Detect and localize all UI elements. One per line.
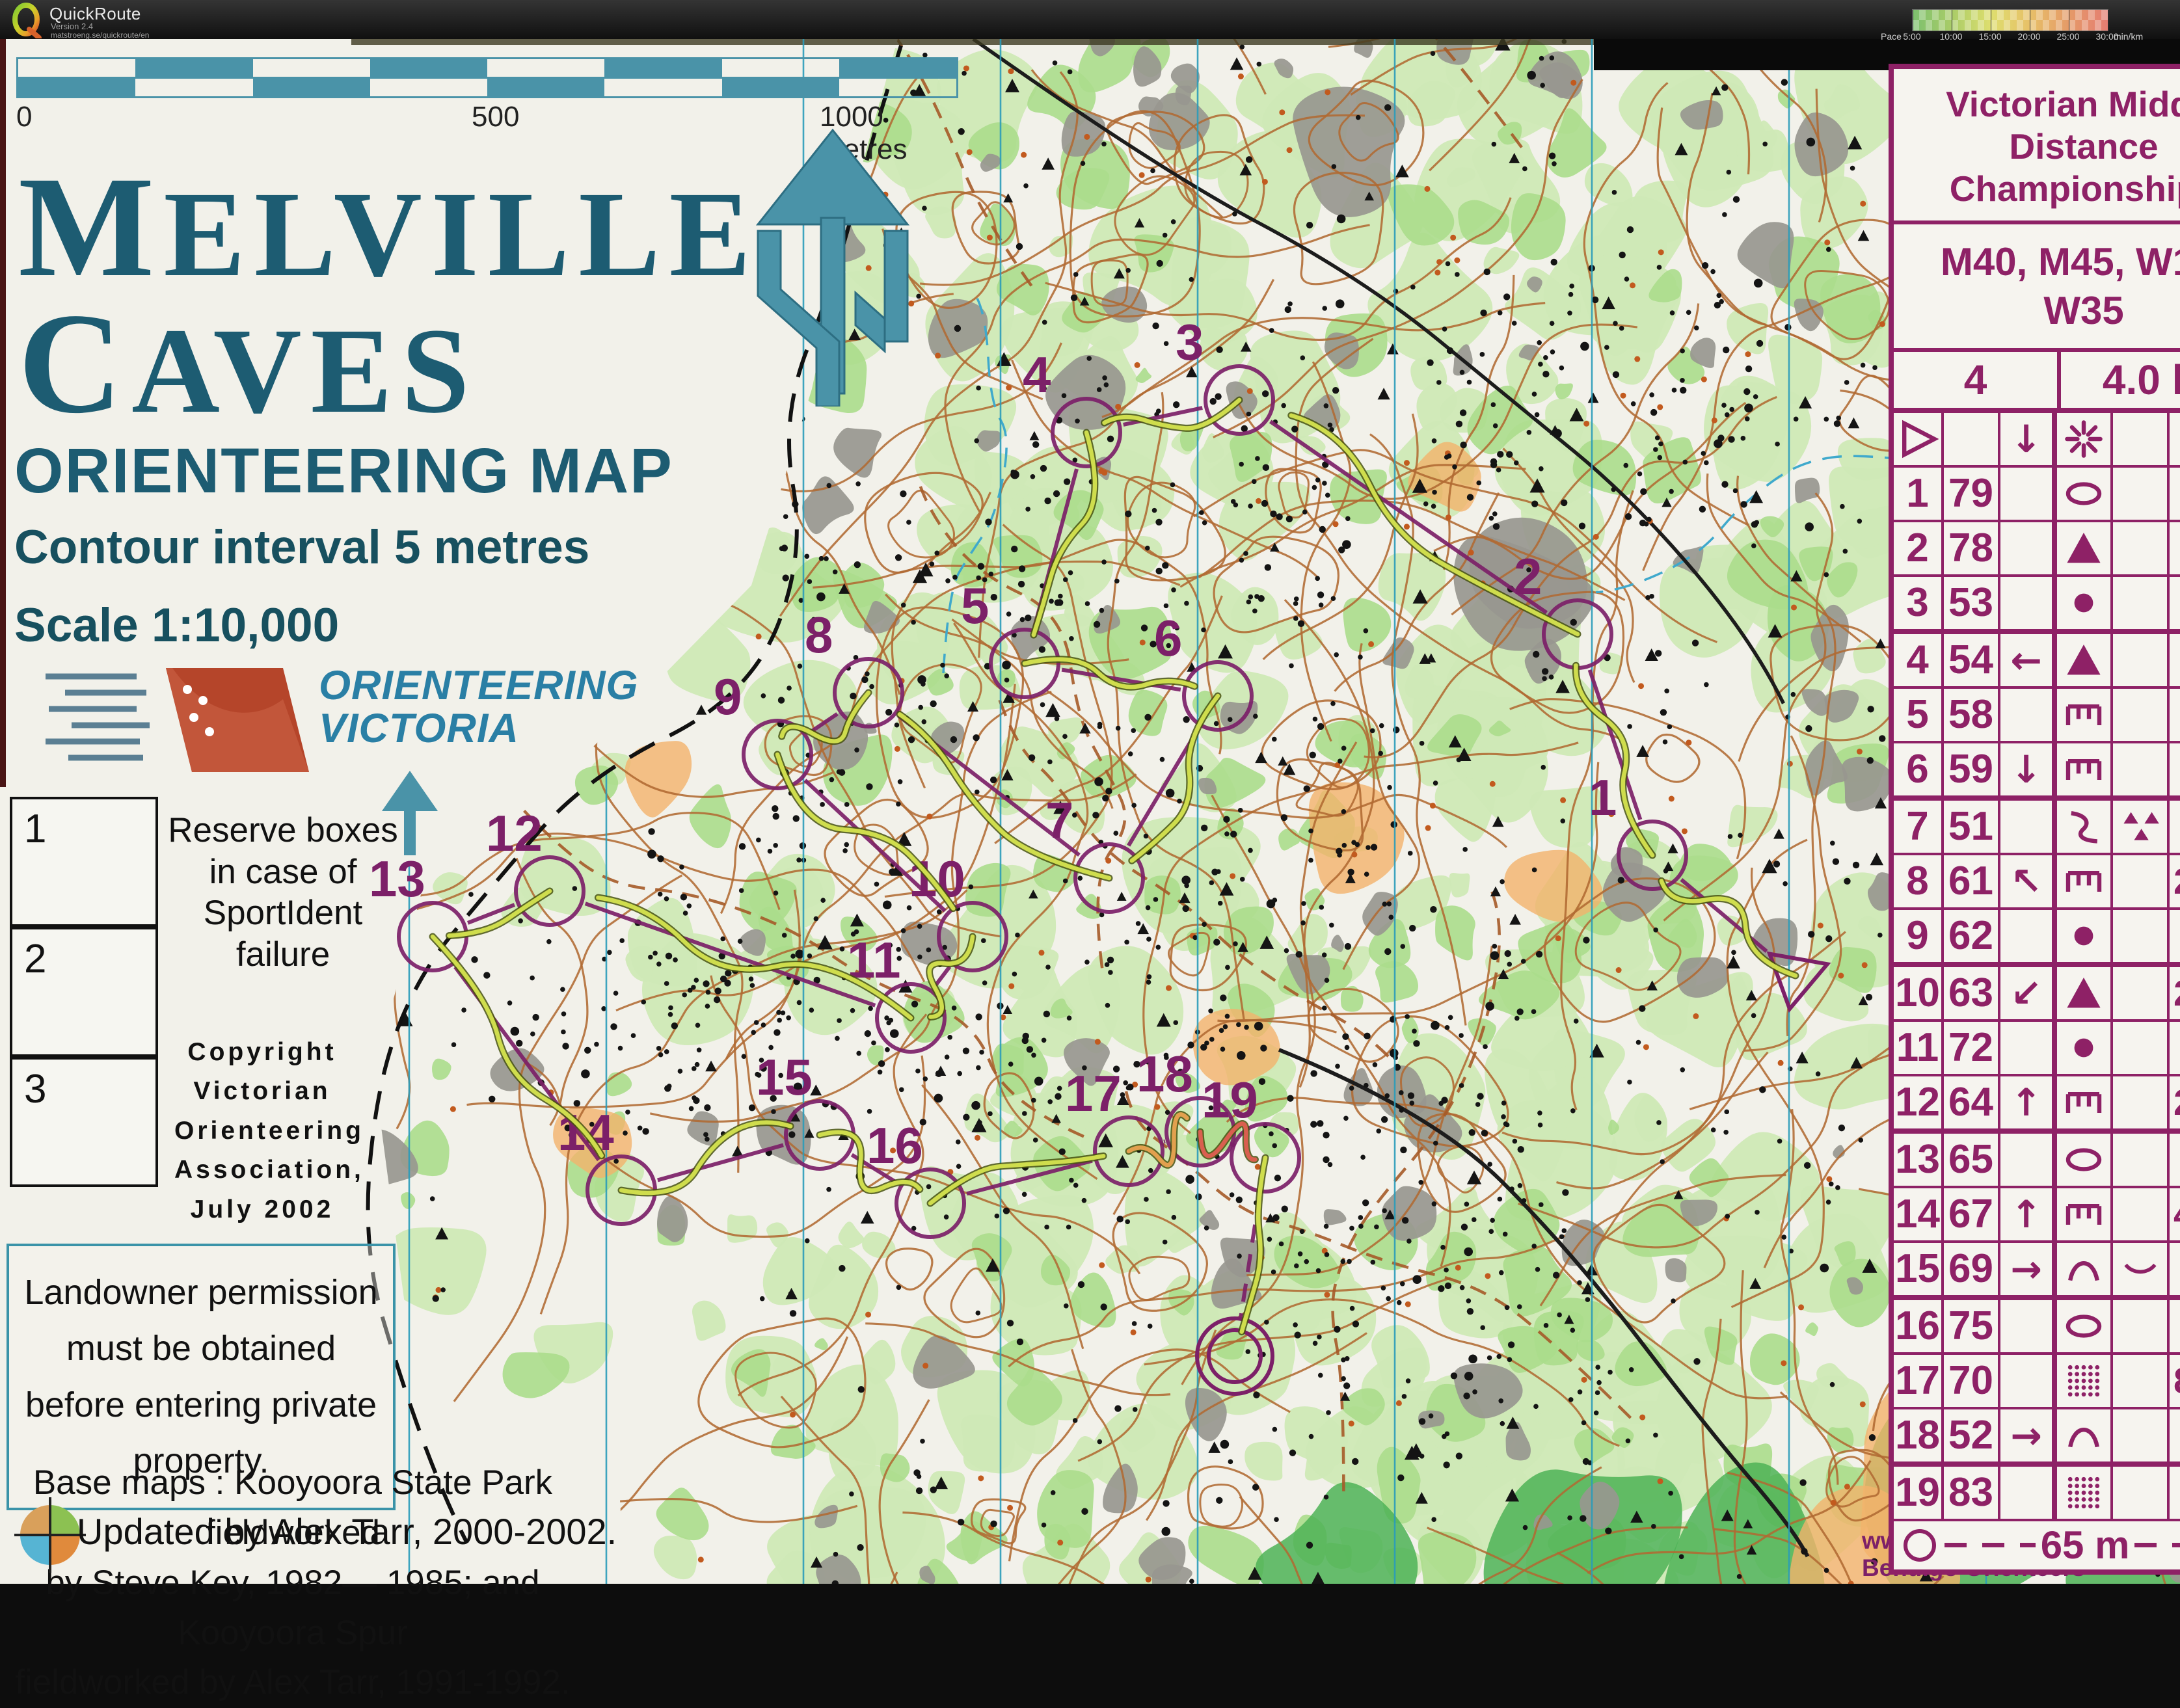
control-number: 5: [1894, 689, 1944, 741]
sheet-row-control-11: 1172: [1894, 1022, 2180, 1076]
reserve-note: Reserve boxes in case of SportIdent fail…: [166, 810, 400, 975]
course-control-number: 12: [486, 805, 543, 862]
detail-symbol: [2113, 743, 2170, 795]
detail-symbol: [2113, 801, 2170, 853]
dimension-value: [2170, 468, 2180, 520]
pace-tick-label: 10:00: [1939, 31, 1962, 42]
detail-symbol: [2113, 910, 2170, 962]
map-scale-note: Scale 1:10,000: [14, 598, 339, 652]
control-number: 2: [1894, 522, 1944, 574]
dimension-value: 2: [2170, 1076, 2180, 1128]
pace-tick: [2069, 10, 2069, 31]
scale-bar-segment: [839, 79, 956, 96]
control-code: 59: [1944, 743, 2000, 795]
start-symbol: [1894, 413, 1944, 465]
sheet-row-control-16: 1675: [1894, 1300, 2180, 1355]
control-number: 9: [1894, 910, 1944, 962]
scale-bar-segment: [839, 59, 956, 77]
feature-symbol: [2057, 1188, 2113, 1240]
orienteering-victoria-logo: ORIENTEERING VICTORIA: [39, 660, 677, 781]
pace-legend: Pace 5:0010:0015:0020:0025:0030:00 min/k…: [1868, 0, 2173, 39]
which-feature-arrow: ↑: [2000, 1076, 2057, 1128]
feature-symbol: [2057, 1467, 2113, 1519]
pace-gradient-bar: [1912, 9, 2108, 31]
dimension-value: 2: [2170, 967, 2180, 1019]
small-north-arrow-icon: [381, 771, 439, 855]
control-code: 83: [1944, 1467, 2000, 1519]
control-code: 69: [1944, 1243, 2000, 1295]
dimension-value: [2170, 743, 2180, 795]
which-feature-arrow: ↓: [2000, 413, 2057, 465]
dimension-value: [2170, 413, 2180, 465]
sheet-row-control-12: 1264↑2: [1894, 1076, 2180, 1134]
association-roundel-icon: [14, 1496, 86, 1574]
quickroute-logo-icon: [9, 2, 44, 38]
control-number: 16: [1894, 1300, 1944, 1352]
detail-symbol: [2113, 1243, 2170, 1295]
control-code: [1944, 413, 2000, 465]
scale-bar-segment: [487, 79, 604, 96]
title-bar: QuickRoute Version 2.4 matstroeng.se/qui…: [0, 0, 2180, 39]
pace-tick: [2108, 10, 2108, 31]
dimension-value: [2170, 689, 2180, 741]
feature-symbol: [2057, 413, 2113, 465]
course-control-number: 3: [1176, 314, 1204, 371]
sheet-row-control-17: 17708: [1894, 1355, 2180, 1409]
which-feature-arrow: →: [2000, 1243, 2057, 1295]
dimension-value: [2170, 910, 2180, 962]
map-title-line1: MELVILLE: [18, 155, 760, 299]
dimension-value: [2170, 801, 2180, 853]
app-version: Version 2.4: [51, 21, 93, 31]
reserve-box-2: 2: [10, 927, 158, 1057]
feature-symbol: [2057, 1022, 2113, 1074]
sheet-row-control-7: 751: [1894, 801, 2180, 855]
control-number: 18: [1894, 1409, 1944, 1461]
sheet-row-control-19: 1983: [1894, 1467, 2180, 1521]
copyright-note: Copyright Victorian Orienteering Associa…: [174, 1033, 350, 1229]
detail-symbol: [2113, 577, 2170, 629]
course-control-number: 15: [756, 1048, 813, 1106]
detail-symbol: [2113, 1355, 2170, 1407]
control-number: 1: [1894, 468, 1944, 520]
feature-symbol: [2057, 743, 2113, 795]
scale-bar-segment: [722, 79, 839, 96]
course-control-number: 4: [1023, 346, 1051, 403]
reserve-box-3: 3: [10, 1057, 158, 1187]
control-code: 63: [1944, 967, 2000, 1019]
pace-tick-label: 20:00: [2017, 31, 2040, 42]
which-feature-arrow: [2000, 801, 2057, 853]
dimension-value: 4: [2170, 1188, 2180, 1240]
pace-tick: [2030, 10, 2030, 31]
detail-symbol: [2113, 1467, 2170, 1519]
course-control-number: 17: [1065, 1065, 1122, 1122]
scale-label-500: 500: [472, 101, 519, 133]
course-control-number: 19: [1202, 1071, 1258, 1128]
control-rows: ↓179278353454←558659↓751861↖29621063↙211…: [1894, 413, 2180, 1521]
dimension-value: [2170, 634, 2180, 686]
sheet-row-control-9: 962: [1894, 910, 2180, 967]
event-title: Victorian Middle Distance Championships: [1894, 69, 2180, 224]
contour-interval-note: Contour interval 5 metres: [14, 520, 589, 574]
dimension-value: [2170, 1134, 2180, 1186]
course-length: 4.0 km: [2061, 352, 2180, 408]
control-number: 13: [1894, 1134, 1944, 1186]
reserve-box-1: 1: [10, 797, 158, 927]
finish-row: 65 m: [1894, 1521, 2180, 1569]
scale-bar-segment: [253, 59, 370, 77]
sheet-row-control-2: 278: [1894, 522, 2180, 577]
sheet-row-start: ↓: [1894, 413, 2180, 468]
control-number: 4: [1894, 634, 1944, 686]
pace-legend-label: Pace: [1881, 31, 1902, 42]
detail-symbol: [2113, 855, 2170, 907]
control-code: 51: [1944, 801, 2000, 853]
control-code: 54: [1944, 634, 2000, 686]
course-control-number: 2: [1514, 548, 1542, 605]
map-subtitle: ORIENTEERING MAP: [14, 434, 673, 507]
control-number: 11: [1894, 1022, 1944, 1074]
feature-symbol: [2057, 522, 2113, 574]
scale-bar-segment: [604, 59, 721, 77]
which-feature-arrow: [2000, 1467, 2057, 1519]
which-feature-arrow: [2000, 577, 2057, 629]
course-control-number: 16: [867, 1117, 923, 1174]
which-feature-arrow: [2000, 1300, 2057, 1352]
dimension-value: [2170, 1243, 2180, 1295]
detail-symbol: [2113, 413, 2170, 465]
pace-tick: [1913, 10, 1913, 31]
control-code: 62: [1944, 910, 2000, 962]
dimension-value: 2: [2170, 855, 2180, 907]
which-feature-arrow: ↑: [2000, 1188, 2057, 1240]
scale-bar-segment: [370, 79, 487, 96]
feature-symbol: [2057, 1355, 2113, 1407]
feature-symbol: [2057, 910, 2113, 962]
control-code: 65: [1944, 1134, 2000, 1186]
dimension-value: [2170, 1467, 2180, 1519]
control-code: 70: [1944, 1355, 2000, 1407]
which-feature-arrow: →: [2000, 1409, 2057, 1461]
detail-symbol: [2113, 1188, 2170, 1240]
control-code: 79: [1944, 468, 2000, 520]
control-code: 78: [1944, 522, 2000, 574]
control-number: 14: [1894, 1188, 1944, 1240]
dimension-value: [2170, 577, 2180, 629]
which-feature-arrow: [2000, 468, 2057, 520]
course-control-number: 9: [714, 668, 742, 725]
which-feature-arrow: [2000, 1355, 2057, 1407]
detail-symbol: [2113, 1134, 2170, 1186]
feature-symbol: [2057, 1076, 2113, 1128]
sheet-row-control-15: 1569→: [1894, 1243, 2180, 1300]
feature-symbol: [2057, 468, 2113, 520]
control-number: 17: [1894, 1355, 1944, 1407]
scale-bar-segment: [18, 79, 135, 96]
control-number: 3: [1894, 577, 1944, 629]
control-code: 67: [1944, 1188, 2000, 1240]
which-feature-arrow: ↖: [2000, 855, 2057, 907]
feature-symbol: [2057, 1243, 2113, 1295]
finish-circle-icon: [1900, 1526, 1939, 1565]
finish-dash: [2134, 1543, 2180, 1547]
detail-symbol: [2113, 967, 2170, 1019]
scale-bar-segment: [370, 59, 487, 77]
feature-symbol: [2057, 801, 2113, 853]
finish-distance: 65 m: [2041, 1523, 2130, 1568]
control-code: 53: [1944, 577, 2000, 629]
which-feature-arrow: [2000, 522, 2057, 574]
dimension-value: [2170, 1300, 2180, 1352]
course-header: 4 4.0 km: [1894, 352, 2180, 413]
course-control-number: 1: [1589, 769, 1617, 826]
which-feature-arrow: [2000, 1022, 2057, 1074]
quickroute-window: { "header": { "app_name": "QuickRoute", …: [0, 0, 2180, 1584]
control-number: 10: [1894, 967, 1944, 1019]
map-title-line2: CAVES: [18, 291, 478, 436]
scale-label-0: 0: [16, 101, 32, 133]
feature-symbol: [2057, 1134, 2113, 1186]
scale-bar-segment: [135, 59, 252, 77]
detail-symbol: [2113, 1409, 2170, 1461]
detail-symbol: [2113, 1022, 2170, 1074]
control-description-sheet: Victorian Middle Distance Championships …: [1889, 64, 2180, 1575]
sheet-row-control-1: 179: [1894, 468, 2180, 522]
dimension-value: 8: [2170, 1355, 2180, 1407]
control-number: 12: [1894, 1076, 1944, 1128]
pace-tick-label: 25:00: [2056, 31, 2079, 42]
which-feature-arrow: ↙: [2000, 967, 2057, 1019]
control-number: 19: [1894, 1467, 1944, 1519]
scale-bar-segment: [18, 59, 135, 77]
course-control-number: 5: [961, 577, 989, 634]
feature-symbol: [2057, 689, 2113, 741]
which-feature-arrow: [2000, 689, 2057, 741]
sheet-row-control-3: 353: [1894, 577, 2180, 634]
which-feature-arrow: ↓: [2000, 743, 2057, 795]
course-control-number: 7: [1045, 792, 1073, 849]
detail-symbol: [2113, 468, 2170, 520]
event-classes: M40, M45, W19, W35: [1894, 224, 2180, 352]
sheet-row-control-13: 1365: [1894, 1134, 2180, 1188]
feature-symbol: [2057, 967, 2113, 1019]
finish-dash: [1945, 1543, 2036, 1547]
control-number: 7: [1894, 801, 1944, 853]
dimension-value: [2170, 1409, 2180, 1461]
pace-bar-checker: [1913, 10, 2108, 31]
sheet-row-control-5: 558: [1894, 689, 2180, 743]
course-control-number: 8: [805, 606, 833, 663]
detail-symbol: [2113, 1300, 2170, 1352]
sheet-row-control-6: 659↓: [1894, 743, 2180, 801]
sheet-row-control-4: 454←: [1894, 634, 2180, 689]
control-number: 15: [1894, 1243, 1944, 1295]
control-code: 58: [1944, 689, 2000, 741]
scale-bar: 0 500 1000 metres: [16, 57, 958, 132]
pace-tick: [1952, 10, 1952, 31]
dimension-value: [2170, 522, 2180, 574]
control-code: 72: [1944, 1022, 2000, 1074]
feature-symbol: [2057, 577, 2113, 629]
control-code: 64: [1944, 1076, 2000, 1128]
detail-symbol: [2113, 1076, 2170, 1128]
feature-symbol: [2057, 1409, 2113, 1461]
which-feature-arrow: [2000, 1134, 2057, 1186]
sheet-row-control-14: 1467↑4: [1894, 1188, 2180, 1243]
pace-tick: [1991, 10, 1991, 31]
which-feature-arrow: ←: [2000, 634, 2057, 686]
control-number: 6: [1894, 743, 1944, 795]
control-number: 8: [1894, 855, 1944, 907]
which-feature-arrow: [2000, 910, 2057, 962]
ov-logo-icon: [39, 660, 319, 781]
feature-symbol: [2057, 634, 2113, 686]
basemaps-note: Base maps : Kooyoora State Park fieldwor…: [0, 1458, 585, 1708]
sheet-row-control-10: 1063↙2: [1894, 967, 2180, 1022]
detail-symbol: [2113, 634, 2170, 686]
north-arrow-icon: [742, 127, 924, 407]
scale-bar-segment: [722, 59, 839, 77]
control-code: 61: [1944, 855, 2000, 907]
sheet-row-control-18: 1852→: [1894, 1409, 2180, 1467]
updated-note: Updated by Alex Tarr, 2000-2002.: [77, 1510, 617, 1553]
sheet-row-control-8: 861↖2: [1894, 855, 2180, 910]
course-number: 4: [1894, 352, 2061, 408]
feature-symbol: [2057, 1300, 2113, 1352]
course-control-number: 6: [1154, 609, 1182, 667]
pace-tick-label: 15:00: [1978, 31, 2001, 42]
app-url: matstroeng.se/quickroute/en: [51, 31, 149, 40]
scale-bar-segment: [253, 79, 370, 96]
course-control-number: 18: [1137, 1045, 1193, 1102]
control-code: 75: [1944, 1300, 2000, 1352]
control-code: 52: [1944, 1409, 2000, 1461]
detail-symbol: [2113, 522, 2170, 574]
ov-logo-text: ORIENTEERING VICTORIA: [319, 664, 639, 750]
pace-unit-label: min/km: [2114, 31, 2143, 42]
scale-bar-segment: [135, 79, 252, 96]
scale-bar-row-top: [16, 57, 958, 79]
scale-bar-segment: [487, 59, 604, 77]
scale-bar-row-bottom: [16, 77, 958, 98]
dimension-value: [2170, 1022, 2180, 1074]
pace-tick-label: 5:00: [1903, 31, 1920, 42]
detail-symbol: [2113, 689, 2170, 741]
scale-bar-segment: [604, 79, 721, 96]
feature-symbol: [2057, 855, 2113, 907]
